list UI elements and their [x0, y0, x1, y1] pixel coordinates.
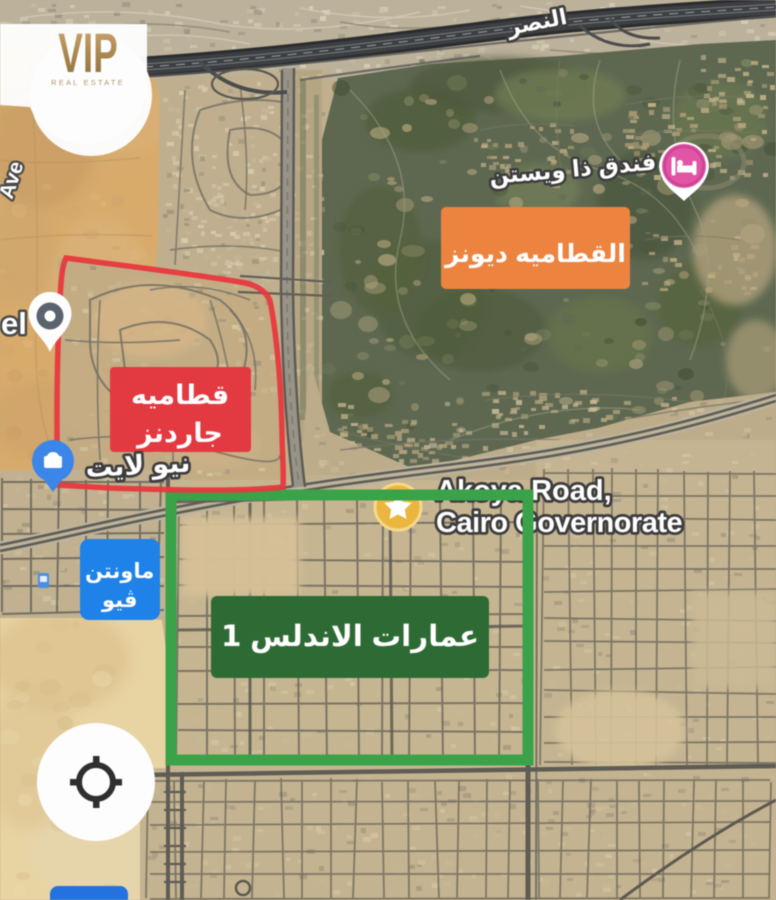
svg-text:el: el	[1, 306, 27, 341]
svg-text:Cairo Governorate: Cairo Governorate	[436, 507, 682, 539]
svg-text:REAL ESTATE: REAL ESTATE	[51, 78, 125, 87]
svg-text:VIP: VIP	[58, 22, 118, 85]
